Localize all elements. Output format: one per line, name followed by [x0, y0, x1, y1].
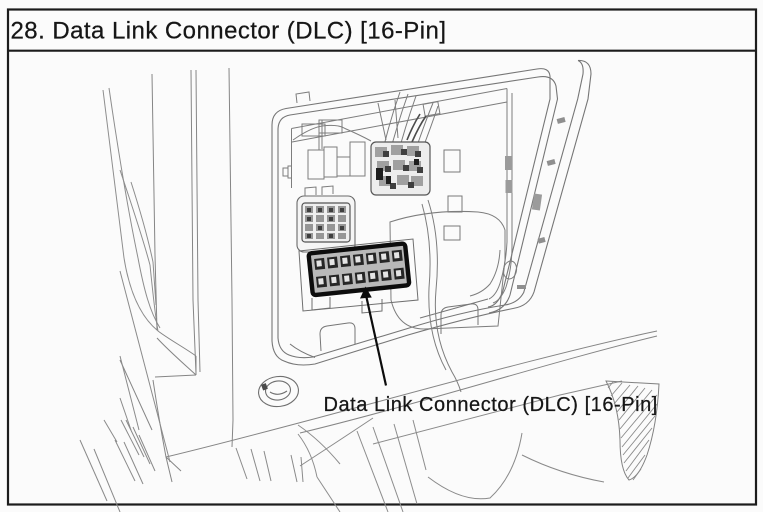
svg-text:28. Data Link Connector (DLC): 28. Data Link Connector (DLC) [16-Pin] — [11, 18, 447, 45]
svg-text:Data Link Connector (DLC) [16-: Data Link Connector (DLC) [16-Pin] — [324, 394, 658, 416]
